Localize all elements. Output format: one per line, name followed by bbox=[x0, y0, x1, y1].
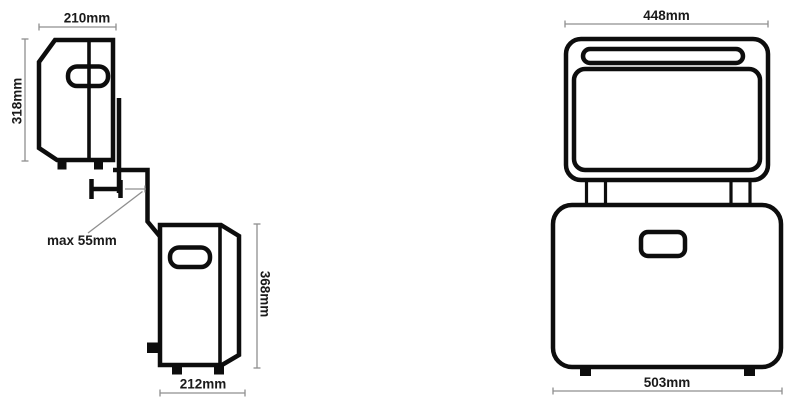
dimension-upper-height: 318mm bbox=[10, 39, 29, 161]
dimension-lower-height: 368mm bbox=[254, 224, 273, 368]
body-foot bbox=[744, 367, 755, 376]
dimension-clamp-opening: max 55mm bbox=[47, 186, 146, 249]
leader-line bbox=[88, 192, 143, 234]
body-outline bbox=[553, 205, 781, 367]
upper-unit-foot bbox=[58, 158, 67, 170]
dimension-diagram: 210mm 318mm bbox=[0, 0, 800, 410]
dimension-label-upper-width: 210mm bbox=[64, 11, 111, 26]
dimension-label-front-body-width: 503mm bbox=[644, 375, 691, 390]
dimension-upper-width: 210mm bbox=[39, 11, 116, 31]
dimension-front-body-width: 503mm bbox=[553, 375, 782, 395]
dimension-lower-width: 212mm bbox=[160, 377, 245, 397]
lower-unit-foot bbox=[214, 363, 224, 375]
upper-unit-foot bbox=[94, 158, 103, 170]
dimension-label-front-lid-width: 448mm bbox=[643, 8, 690, 23]
body-foot bbox=[580, 367, 591, 376]
side-view: 210mm 318mm bbox=[10, 11, 273, 397]
dimension-label-lower-width: 212mm bbox=[180, 377, 227, 392]
dimension-front-lid-width: 448mm bbox=[565, 8, 768, 28]
body-handle-recess bbox=[641, 232, 685, 256]
dimension-label-upper-height: 318mm bbox=[10, 78, 25, 125]
dimension-label-lower-height: 368mm bbox=[258, 271, 273, 318]
lower-unit-foot bbox=[172, 363, 182, 375]
front-view: 448mm 503mm bbox=[553, 8, 782, 395]
upper-unit-outline bbox=[39, 40, 113, 160]
lower-unit-handle-recess bbox=[170, 248, 210, 268]
lower-unit-drain-plug bbox=[147, 343, 160, 354]
dimension-label-clamp-max: max 55mm bbox=[47, 233, 117, 248]
lid-inner-panel bbox=[574, 69, 760, 170]
lid-top-slot bbox=[583, 49, 743, 63]
dimension-diagram-page: 210mm 318mm bbox=[0, 0, 800, 410]
